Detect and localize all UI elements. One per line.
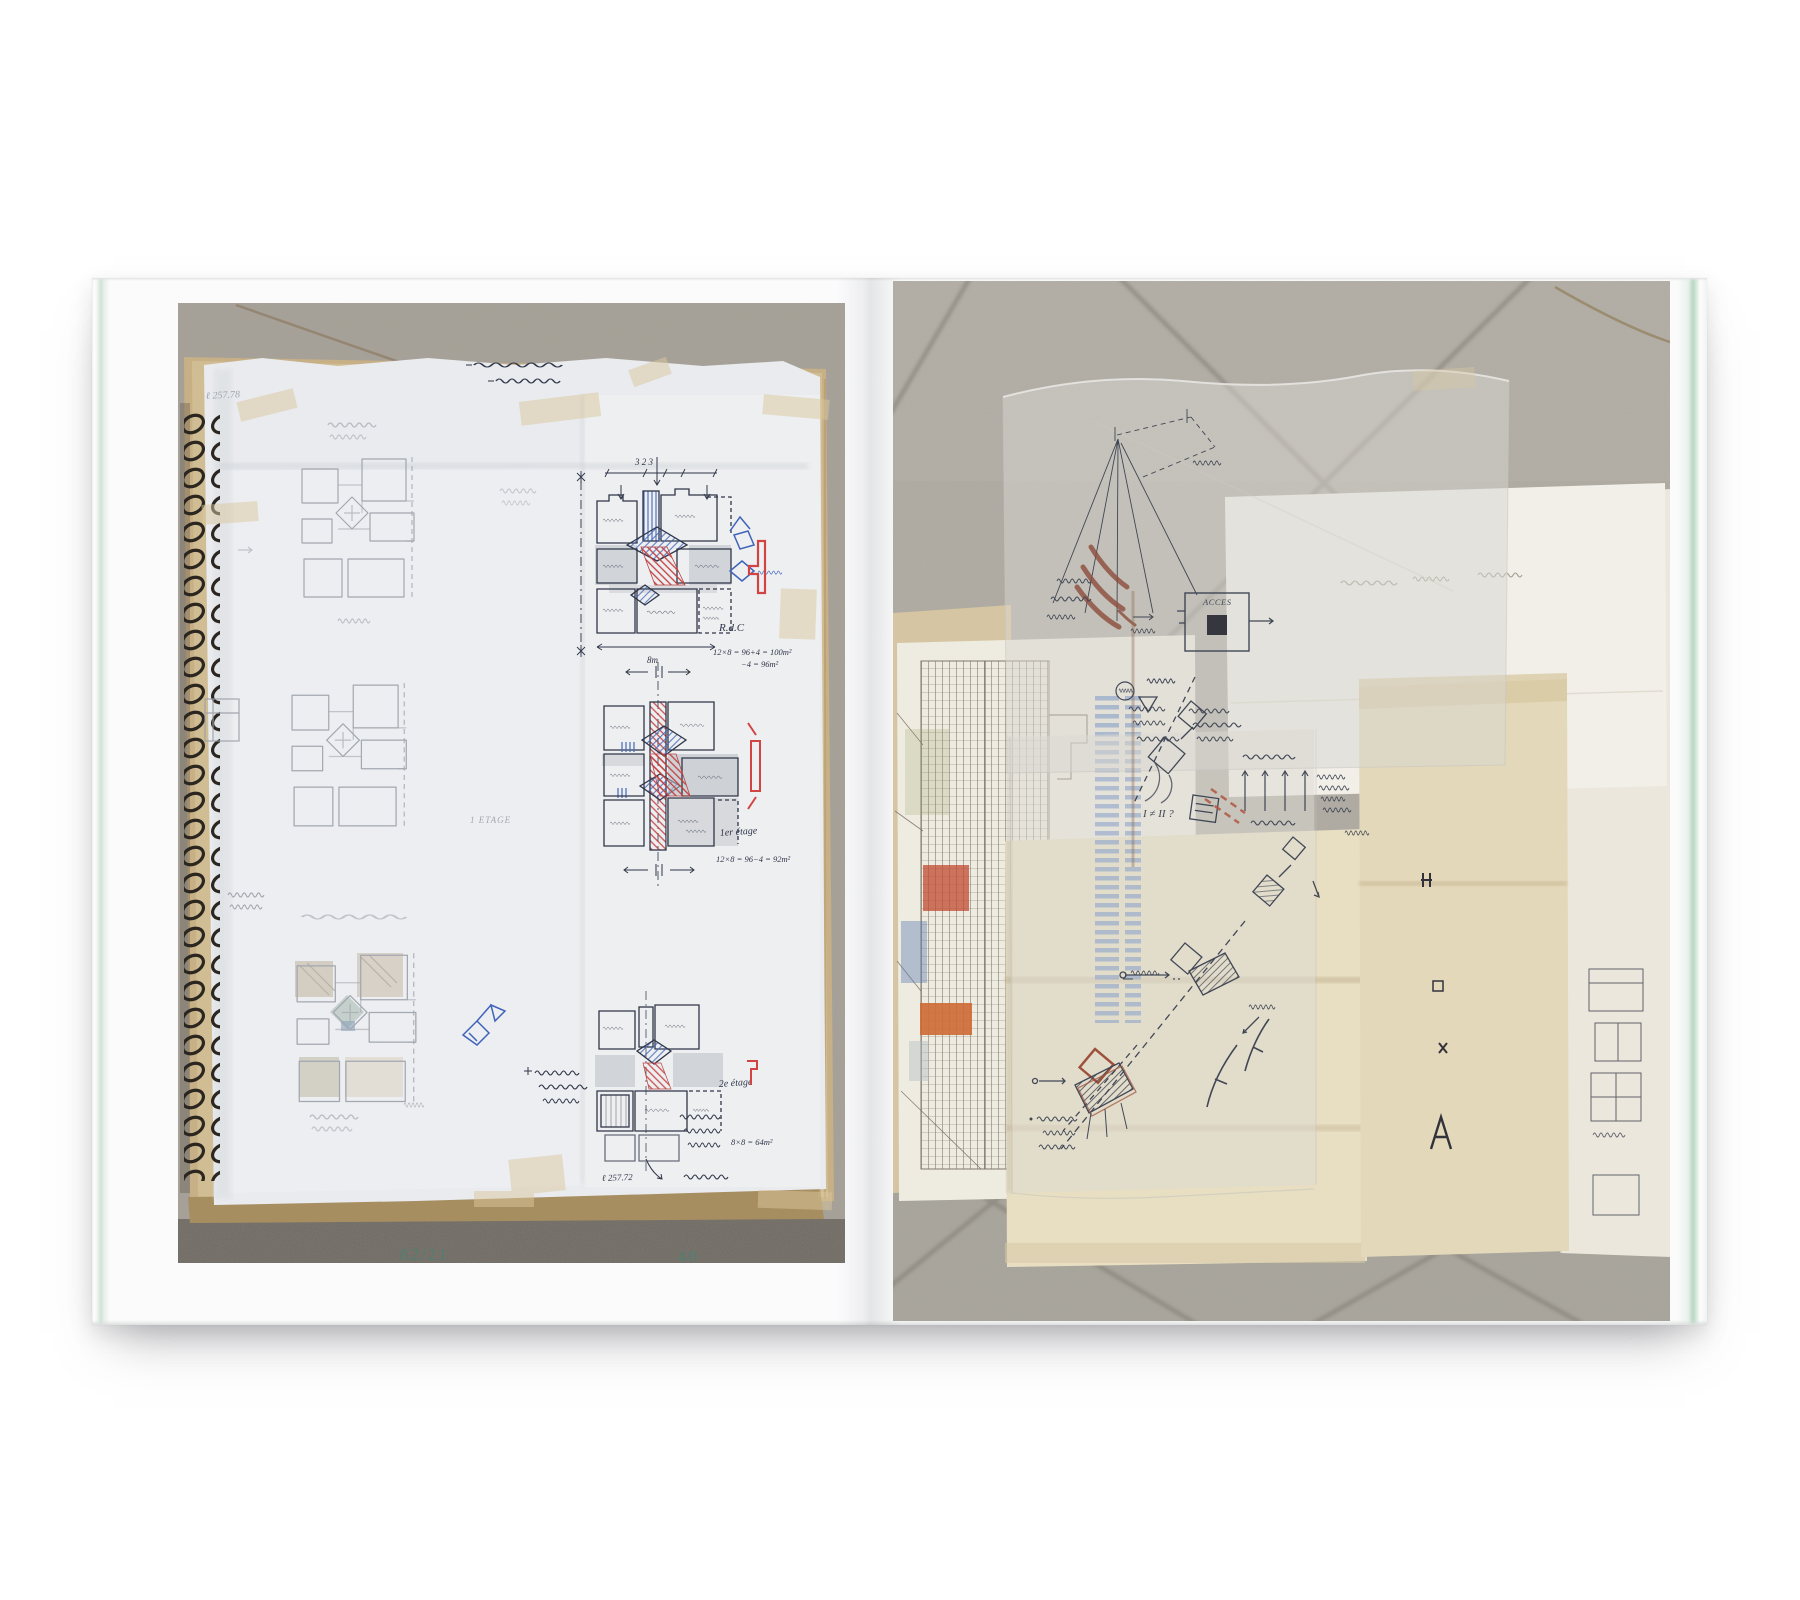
left-page-photo-sketchbook: ℓ 257.78 1 ETAGE 3 2 3: [178, 303, 845, 1263]
label-acces: ACCES: [1202, 597, 1232, 607]
caption-sketchbook-ref: 82/21: [400, 1246, 449, 1263]
right-page-photo-tracing-sheets: ACCES I ≠ II ?: [893, 281, 1670, 1321]
product-photo-page: { "book": { "caption_left": "82/21", "pa…: [0, 0, 1800, 1600]
paper-sheets-stack: [893, 367, 1670, 1267]
dim-top-text: 3 2 3: [634, 457, 654, 467]
book-fore-edge-left: [92, 278, 110, 1325]
book-gutter: [837, 278, 901, 1325]
tracing-strip-center: [1006, 729, 1316, 1198]
page-number: 40: [678, 1248, 699, 1265]
dim-bottom-text: 8m: [647, 655, 659, 665]
calc-ground-2: −4 = 96m²: [741, 659, 779, 669]
label-compare: I ≠ II ?: [1142, 808, 1174, 820]
label-rdc: R.d.C: [718, 622, 745, 634]
calc-second-floor: 8×8 = 64m²: [731, 1137, 773, 1147]
calc-first-floor: 12×8 = 96−4 = 92m²: [716, 854, 791, 864]
ref-bottom: ℓ 257.72: [602, 1172, 634, 1183]
calc-ground-1: 12×8 = 96+4 = 100m²: [713, 647, 792, 657]
tracing-sheet-top: [1003, 367, 1509, 773]
spiral-binding: [184, 411, 220, 1181]
book-fore-edge-right: [1670, 278, 1707, 1325]
pencil-floor-label: 1 ETAGE: [470, 815, 511, 825]
pencil-ref-number: ℓ 257.78: [206, 389, 241, 402]
open-book-spread: ℓ 257.78 1 ETAGE 3 2 3: [92, 278, 1707, 1325]
